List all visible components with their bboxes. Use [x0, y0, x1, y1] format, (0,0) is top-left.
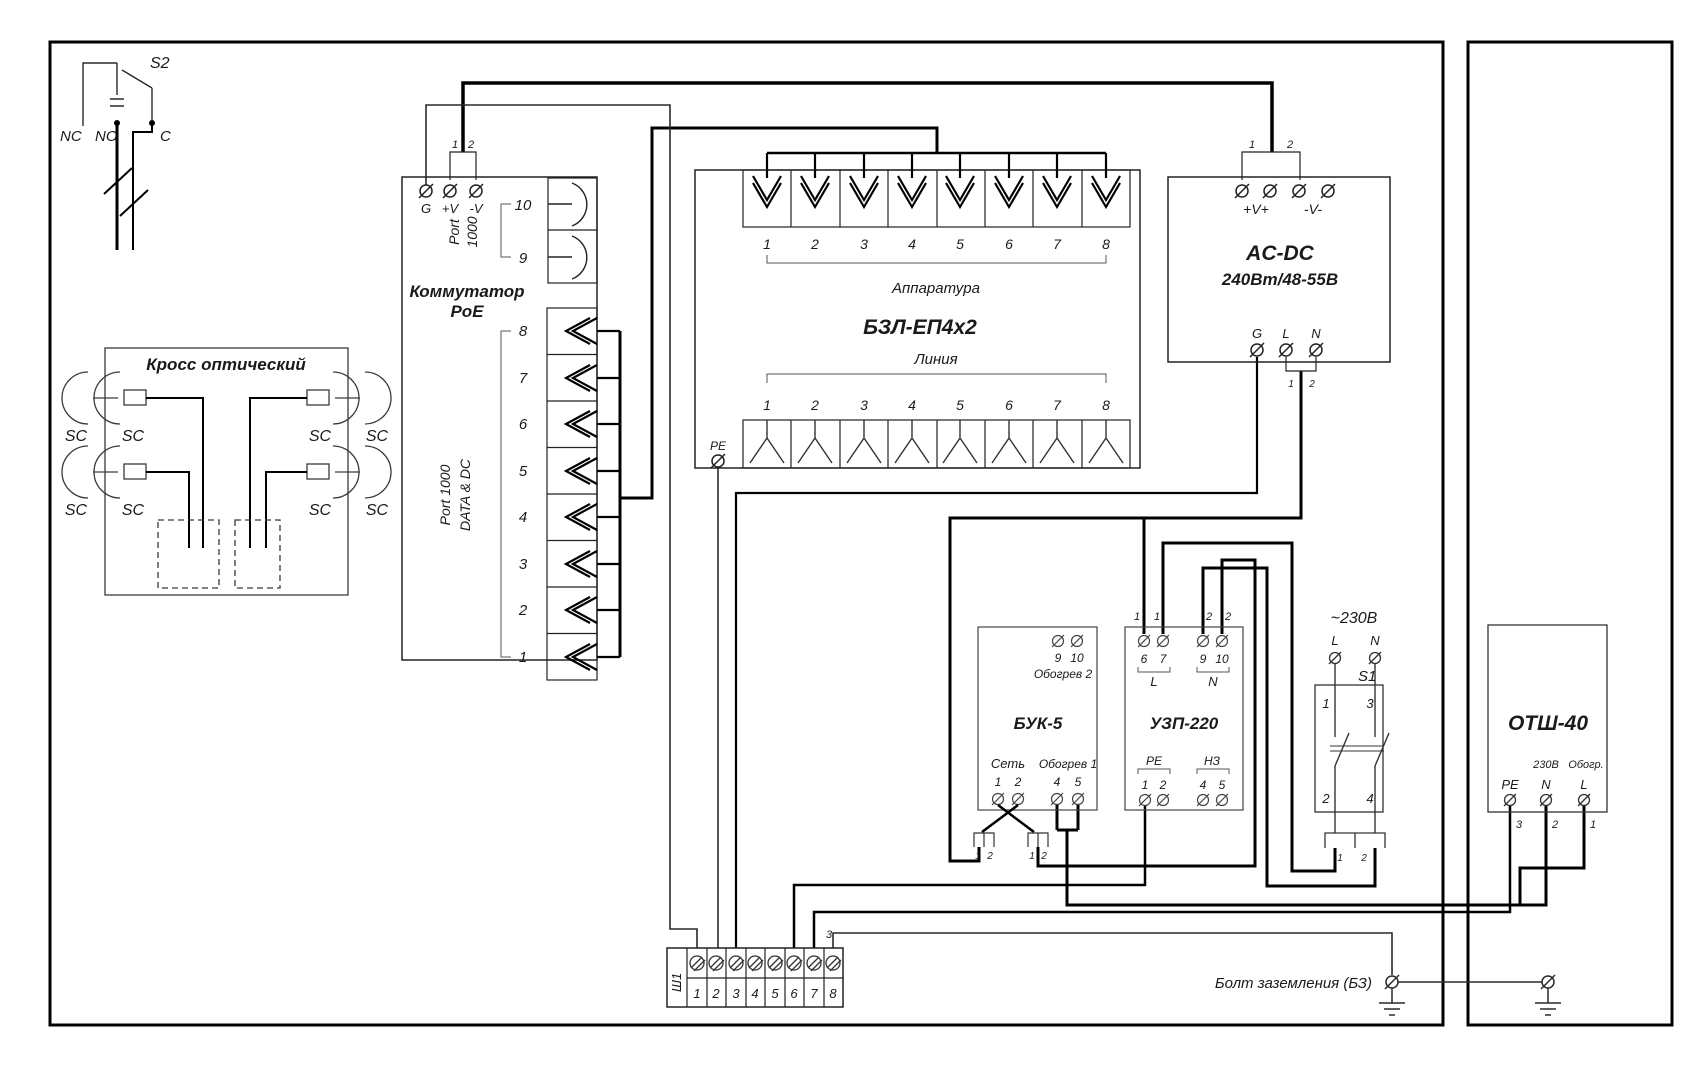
uzp-b4: 4 — [1200, 778, 1207, 792]
poe-title-1: Коммутатор — [409, 282, 524, 301]
sc-label: SC — [122, 502, 145, 519]
bzl-top-number: 1 — [763, 236, 771, 252]
buk-t5: 5 — [1075, 775, 1082, 789]
otsh-230v-label: 230В — [1532, 759, 1559, 771]
sc-label: SC — [366, 428, 389, 445]
bzl-top-group-label: Аппаратура — [891, 280, 980, 297]
optical-cross-title: Кросс оптический — [146, 355, 306, 374]
uplink-group-label-2: 1000 — [464, 216, 480, 247]
acdc-vminus-label: -V- — [1304, 201, 1322, 217]
s2-label: S2 — [150, 55, 170, 72]
buk-heat2-label: Обогрев 2 — [1034, 667, 1093, 681]
poe-switch: G +V -V 1 2 10 9 Port 1000 Коммутатор Po… — [402, 139, 620, 680]
canvas — [0, 0, 1687, 1080]
bzl-title: БЗЛ-ЕП4х2 — [863, 316, 977, 339]
otsh-w2: 2 — [1551, 819, 1558, 831]
bzl-bottom-number: 3 — [860, 397, 868, 413]
bzl-pe-label: PE — [710, 439, 727, 453]
poe-minusv-label: -V — [470, 201, 484, 216]
otsh-heat-label: Обогр. — [1568, 759, 1603, 771]
acdc-bpin1: 1 — [1288, 379, 1294, 390]
sh1-number: 2 — [711, 986, 720, 1001]
poe-port-number: 2 — [518, 602, 528, 619]
uzp-t9: 9 — [1200, 652, 1207, 666]
buk-heat1-label: Обогрев 1 — [1039, 757, 1097, 771]
otsh-title: ОТШ-40 — [1508, 712, 1588, 735]
uzp-b1: 1 — [1142, 778, 1149, 792]
uzp-pin: 2 — [1205, 611, 1212, 623]
poe-port-number: 3 — [519, 556, 528, 573]
bzl-bottom-number: 1 — [763, 397, 771, 413]
poe-port-number: 1 — [519, 649, 527, 666]
poe-port-number: 7 — [519, 370, 528, 387]
buk-t1: 1 — [995, 775, 1002, 789]
s1-n-label: N — [1370, 633, 1380, 648]
sh1-number: 8 — [829, 986, 837, 1001]
s2-nc-label: NC — [60, 128, 82, 145]
sh1-number: 5 — [771, 986, 779, 1001]
buk-c1p2: 2 — [986, 851, 993, 862]
bzl-bottom-number: 8 — [1102, 397, 1110, 413]
poe-port-number: 6 — [519, 416, 528, 433]
uzp-nz-label: НЗ — [1204, 754, 1221, 768]
poe-title-2: PoE — [450, 302, 484, 321]
uzp-b5: 5 — [1219, 778, 1226, 792]
sh1-number: 7 — [810, 986, 818, 1001]
bzl-top-number: 6 — [1005, 236, 1013, 252]
uzp-pin: 2 — [1224, 611, 1231, 623]
sc-label: SC — [65, 428, 88, 445]
poe-plusv-label: +V — [442, 201, 460, 216]
sc-label: SC — [65, 502, 88, 519]
s2-no-label: NO — [95, 128, 118, 145]
acdc-g-label: G — [1252, 326, 1262, 341]
bzl-top-number: 4 — [908, 236, 916, 252]
buk-title: БУК-5 — [1014, 714, 1063, 733]
bzl-top-number: 3 — [860, 236, 868, 252]
sh1-number: 1 — [693, 986, 700, 1001]
poe-pin2: 2 — [467, 139, 474, 151]
uzp-l-label: L — [1150, 674, 1157, 689]
sh1-number: 6 — [790, 986, 798, 1001]
bzl-bottom-number: 7 — [1053, 397, 1062, 413]
bzl-bottom-number: 6 — [1005, 397, 1013, 413]
poe-port-number: 4 — [519, 509, 527, 526]
acdc-n-label: N — [1311, 326, 1321, 341]
buk-t4: 4 — [1054, 775, 1061, 789]
s1-p2: 2 — [1360, 853, 1367, 864]
uzp-pe-label: PE — [1146, 754, 1163, 768]
poe-port9-label: 9 — [519, 250, 528, 267]
s1-l-label: L — [1331, 633, 1338, 648]
otsh-w3: 3 — [1516, 819, 1523, 831]
data-group-label-2: DATA & DC — [457, 458, 473, 531]
s1-voltage-label: ~230В — [1331, 610, 1378, 627]
bzl-top-number: 5 — [956, 236, 964, 252]
poe-pin1: 1 — [452, 139, 458, 151]
acdc-title-2: 240Вт/48-55В — [1221, 270, 1338, 289]
acdc-pin1: 1 — [1249, 139, 1255, 151]
bzl-bottom-number: 2 — [810, 397, 819, 413]
sh1-number: 3 — [732, 986, 740, 1001]
wire-3-label: 3 — [826, 929, 833, 941]
bzl-top-number: 8 — [1102, 236, 1110, 252]
data-group-label-1: Port 1000 — [437, 464, 453, 525]
buk-c2p1: 1 — [1029, 851, 1035, 862]
s1-c2: 2 — [1321, 791, 1330, 806]
uzp-t6: 6 — [1141, 652, 1148, 666]
sc-label: SC — [366, 502, 389, 519]
wiring-diagram: S2 NC NO C Кросс оптический — [0, 0, 1687, 1080]
sh1-number: 4 — [751, 986, 758, 1001]
sc-label: SC — [309, 428, 332, 445]
buk-t2: 2 — [1014, 775, 1022, 789]
acdc-title-1: AC-DC — [1245, 242, 1314, 265]
sc-label: SC — [309, 502, 332, 519]
s1-label: S1 — [1358, 668, 1376, 685]
acdc-pin2: 2 — [1286, 139, 1293, 151]
poe-g-label: G — [421, 201, 431, 216]
uzp-title: УЗП-220 — [1150, 714, 1219, 733]
otsh-l-label: L — [1580, 777, 1587, 792]
ground-bolt-label: Болт заземления (БЗ) — [1215, 975, 1372, 992]
s1-c3: 3 — [1366, 696, 1374, 711]
buk-c2p2: 2 — [1040, 851, 1047, 862]
buk-c1p1: 1 — [975, 851, 981, 862]
poe-port10-label: 10 — [515, 197, 532, 214]
otsh-w1: 1 — [1590, 819, 1596, 831]
poe-port-number: 5 — [519, 463, 528, 480]
buk-t9: 9 — [1055, 651, 1062, 665]
s1-c4: 4 — [1366, 791, 1373, 806]
s1-c1: 1 — [1322, 696, 1329, 711]
uzp-b2: 2 — [1159, 778, 1167, 792]
s2-c-label: C — [160, 128, 171, 145]
uzp-n-label: N — [1208, 674, 1218, 689]
buk-net-label: Сеть — [991, 756, 1025, 771]
bzl-top-number: 2 — [810, 236, 819, 252]
buk-t10: 10 — [1070, 651, 1084, 665]
sh1-label: Ш1 — [669, 973, 684, 992]
bzl-top-number: 7 — [1053, 236, 1062, 252]
sc-label: SC — [122, 428, 145, 445]
otsh-n-label: N — [1541, 777, 1551, 792]
acdc-l-label: L — [1282, 326, 1289, 341]
bzl-bottom-group-label: Линия — [913, 351, 957, 368]
uzp-t10: 10 — [1215, 652, 1229, 666]
bzl-bottom-number: 5 — [956, 397, 964, 413]
otsh-pe-label: PE — [1501, 777, 1519, 792]
acdc-vplus-label: +V+ — [1243, 201, 1269, 217]
uzp-pin: 1 — [1134, 611, 1140, 623]
bzl-bottom-number: 4 — [908, 397, 916, 413]
uzp-pin: 1 — [1154, 611, 1160, 623]
poe-port-number: 8 — [519, 323, 528, 340]
acdc-bpin2: 2 — [1308, 379, 1315, 390]
s1-p1: 1 — [1337, 853, 1343, 864]
uplink-group-label-1: Port — [446, 218, 462, 245]
